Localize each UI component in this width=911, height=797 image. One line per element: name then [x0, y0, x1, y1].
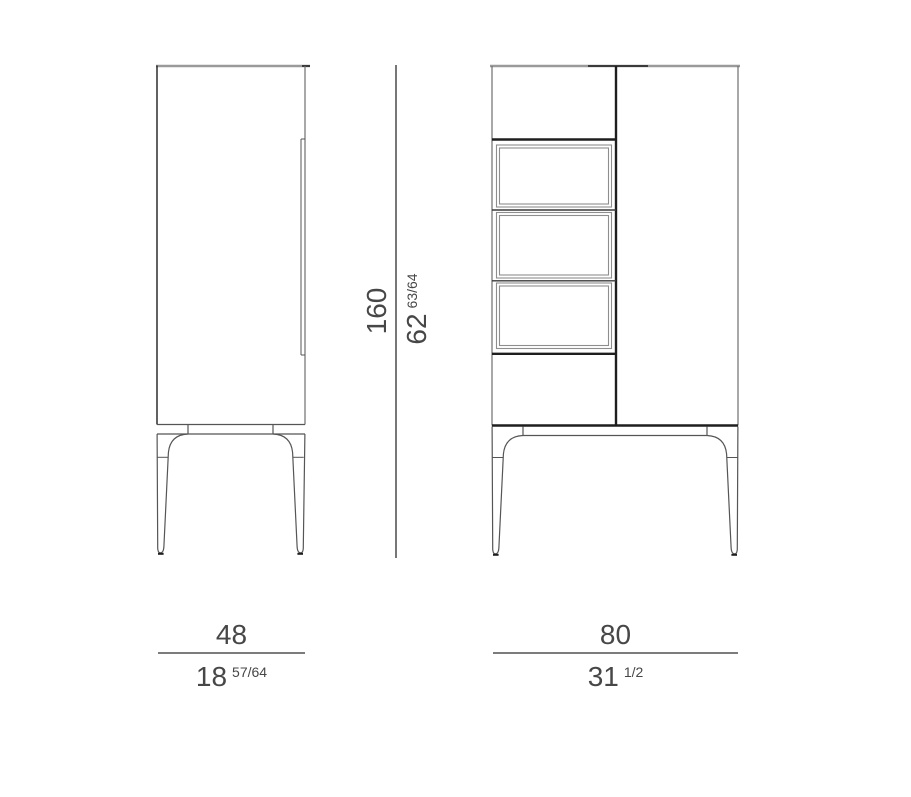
side-view-drawing: [156, 66, 310, 554]
side-width-cm-label: 48: [158, 620, 305, 650]
dimension-lines: [158, 65, 738, 653]
furniture-line-drawing: [0, 0, 911, 797]
front-width-inch-whole: 31: [588, 661, 619, 692]
front-drawer-1-panel: [500, 148, 609, 204]
side-right-leg: [273, 434, 305, 553]
front-view-drawing: [490, 66, 740, 555]
front-width-inch-fraction: 1/2: [624, 664, 643, 680]
height-inch-label: 6263/64: [402, 273, 436, 344]
height-inch-fraction: 63/64: [404, 273, 420, 308]
front-right-leg: [707, 427, 738, 554]
front-drawer-2-panel: [500, 216, 609, 276]
front-width-cm-label: 80: [493, 620, 738, 650]
side-width-inch-label: 1857/64: [158, 662, 305, 696]
side-width-inch-whole: 18: [196, 661, 227, 692]
front-drawer-2-frame: [497, 213, 612, 279]
height-inch-whole: 62: [401, 313, 432, 344]
front-drawer-3-panel: [500, 286, 609, 346]
front-drawer-3-frame: [497, 283, 612, 349]
side-left-leg: [157, 434, 188, 553]
front-drawer-1-frame: [497, 145, 612, 207]
technical-drawing-canvas: 48 1857/64 80 311/2 160 6263/64: [0, 0, 911, 797]
side-width-inch-fraction: 57/64: [232, 664, 267, 680]
front-left-leg: [492, 427, 523, 554]
height-cm-label: 160: [362, 288, 392, 335]
front-width-inch-label: 311/2: [493, 662, 738, 696]
